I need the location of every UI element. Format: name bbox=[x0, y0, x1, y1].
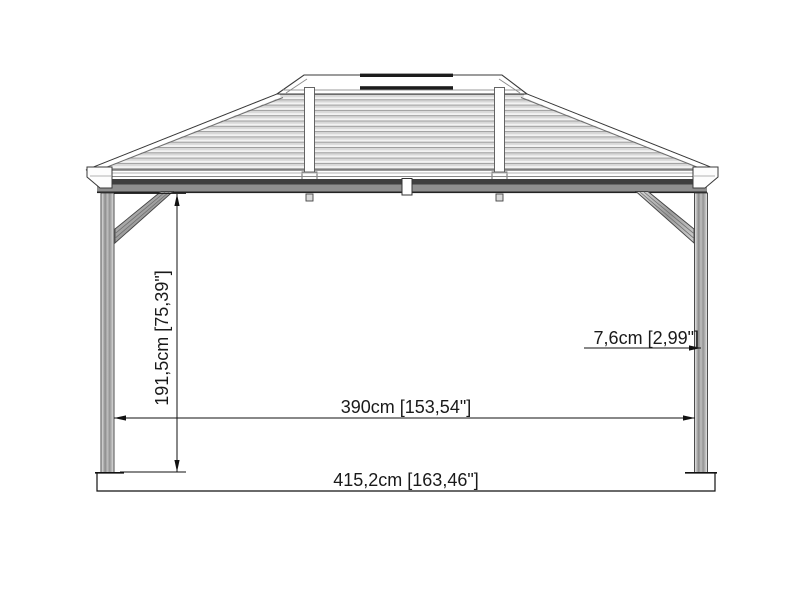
arrow-right-icon bbox=[683, 415, 695, 420]
corner-brace-left bbox=[115, 192, 173, 244]
technical-drawing-canvas: 191,5cm [75,39"] 390cm [153,54"] 7,6cm [… bbox=[0, 0, 800, 600]
dimension-post-thickness: 7,6cm [2,99"] bbox=[584, 328, 701, 351]
arrow-left-icon bbox=[114, 415, 126, 420]
arrow-up-icon bbox=[174, 194, 179, 206]
eave-beam bbox=[87, 167, 718, 195]
dimension-post-thickness-label: 7,6cm [2,99"] bbox=[594, 328, 699, 348]
dimension-inner-width: 390cm [153,54"] bbox=[114, 397, 695, 421]
ridge-vent-bar-top bbox=[360, 74, 453, 77]
dimension-inner-width-label: 390cm [153,54"] bbox=[341, 397, 471, 417]
corner-brace-right bbox=[636, 192, 694, 244]
roof-slat-panel bbox=[86, 94, 718, 170]
beam-center-joint-tab bbox=[402, 179, 412, 196]
post-left bbox=[101, 193, 114, 473]
dimension-height: 191,5cm [75,39"] bbox=[114, 193, 186, 472]
dimension-overall-width: 415,2cm [163,46"] bbox=[97, 470, 715, 491]
dimension-height-label: 191,5cm [75,39"] bbox=[152, 270, 172, 405]
arrow-down-icon bbox=[174, 460, 179, 472]
gutter-end-cap-left bbox=[87, 167, 112, 188]
ridge-vent-bar-bottom bbox=[360, 86, 453, 89]
drawing-page: 191,5cm [75,39"] 390cm [153,54"] 7,6cm [… bbox=[0, 0, 800, 600]
dimension-overall-width-label: 415,2cm [163,46"] bbox=[333, 470, 479, 490]
gutter-end-cap-right bbox=[693, 167, 718, 188]
